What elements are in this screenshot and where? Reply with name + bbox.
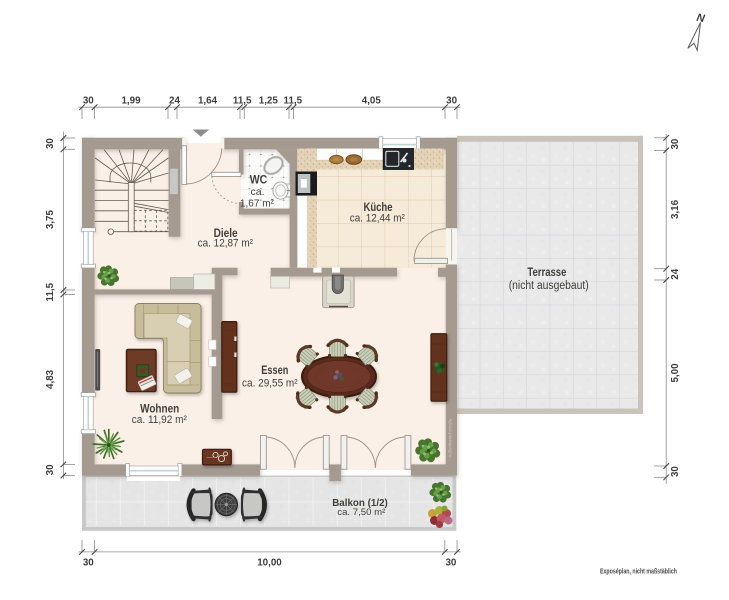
svg-text:1,25: 1,25	[259, 96, 279, 107]
svg-text:30: 30	[45, 138, 56, 149]
svg-text:24: 24	[670, 268, 681, 279]
svg-text:10,00: 10,00	[257, 558, 282, 569]
svg-text:24: 24	[169, 96, 180, 107]
svg-text:Außenbereichsmaße: Außenbereichsmaße	[448, 418, 453, 458]
svg-text:ca. 12,44 m²: ca. 12,44 m²	[350, 213, 405, 225]
svg-text:4,83: 4,83	[45, 369, 56, 389]
svg-text:30: 30	[445, 558, 456, 569]
svg-text:1,99: 1,99	[121, 96, 141, 107]
svg-text:1,67 m²: 1,67 m²	[240, 198, 274, 210]
svg-text:Terrasse: Terrasse	[527, 265, 566, 279]
svg-text:ca. 7,50 m²: ca. 7,50 m²	[337, 507, 385, 518]
svg-text:ca.: ca.	[251, 186, 265, 198]
svg-text:ca. 12,87 m²: ca. 12,87 m²	[198, 238, 254, 250]
svg-text:5,00: 5,00	[670, 363, 681, 383]
svg-text:Essen: Essen	[261, 363, 288, 377]
svg-text:ca. 29,55 m²: ca. 29,55 m²	[242, 378, 298, 390]
svg-text:11,5: 11,5	[233, 96, 252, 107]
svg-text:WC: WC	[250, 173, 268, 187]
svg-text:3,16: 3,16	[670, 199, 681, 219]
svg-text:30: 30	[83, 558, 94, 569]
svg-text:30: 30	[83, 96, 94, 107]
svg-text:30: 30	[45, 464, 56, 475]
svg-text:Exposéplan, nicht maßstäblich: Exposéplan, nicht maßstäblich	[600, 569, 677, 576]
svg-text:11,5: 11,5	[45, 282, 56, 301]
svg-text:30: 30	[670, 138, 681, 149]
svg-text:4,05: 4,05	[362, 96, 382, 107]
svg-text:11,5: 11,5	[284, 96, 303, 107]
svg-text:1,64: 1,64	[198, 96, 218, 107]
svg-text:(nicht ausgebaut): (nicht ausgebaut)	[509, 280, 589, 292]
svg-text:ca. 11,92 m²: ca. 11,92 m²	[132, 414, 187, 426]
svg-text:3,75: 3,75	[45, 210, 56, 230]
svg-text:30: 30	[670, 466, 681, 477]
svg-text:30: 30	[446, 96, 457, 107]
